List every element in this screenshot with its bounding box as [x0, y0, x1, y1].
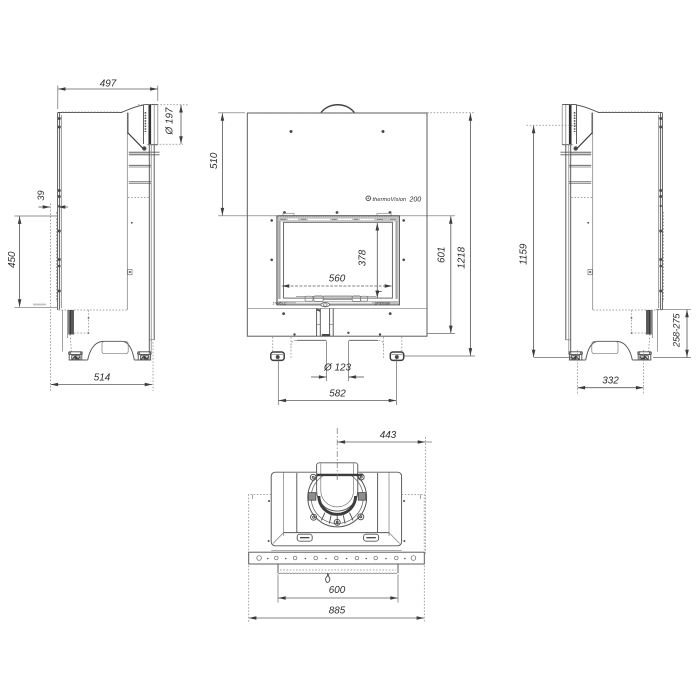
svg-text:Ø 197: Ø 197 — [165, 107, 176, 135]
svg-text:514: 514 — [94, 373, 111, 384]
svg-text:601: 601 — [437, 247, 448, 263]
svg-text:560: 560 — [329, 274, 346, 285]
svg-text:SP00008B: SP00008B — [375, 302, 391, 306]
svg-text:258-275: 258-275 — [672, 313, 682, 349]
svg-text:17045 LC: 17045 LC — [273, 302, 288, 306]
svg-text:332: 332 — [602, 376, 619, 387]
svg-text:1159: 1159 — [519, 243, 530, 265]
svg-text:443: 443 — [380, 430, 397, 441]
svg-text:200: 200 — [409, 197, 422, 204]
svg-text:600: 600 — [329, 585, 346, 596]
svg-text:885: 885 — [329, 606, 346, 617]
svg-text:450: 450 — [7, 251, 18, 268]
svg-text:497: 497 — [100, 79, 117, 90]
svg-text:582: 582 — [329, 389, 346, 400]
svg-text:thermoVision: thermoVision — [373, 197, 407, 203]
svg-text:39: 39 — [36, 190, 46, 200]
svg-text:Ø 123: Ø 123 — [323, 363, 351, 374]
svg-text:378: 378 — [357, 249, 368, 266]
svg-text:510: 510 — [209, 152, 220, 169]
svg-text:1218: 1218 — [457, 246, 468, 268]
